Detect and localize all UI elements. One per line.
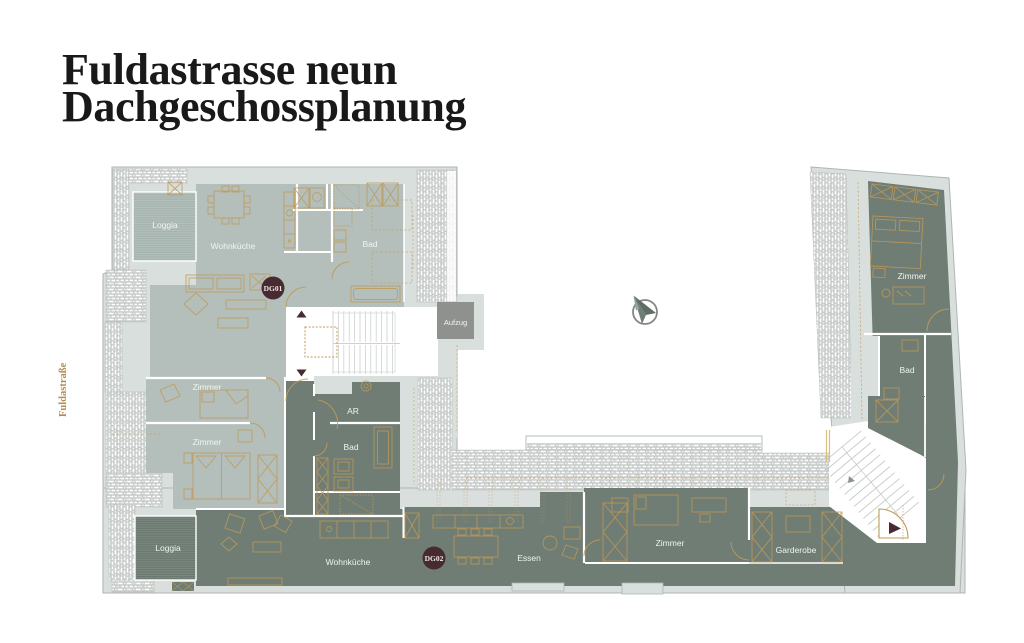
svg-text:Zimmer: Zimmer: [898, 271, 927, 281]
svg-text:Bad: Bad: [343, 442, 358, 452]
svg-text:Loggia: Loggia: [152, 220, 178, 230]
svg-text:Zimmer: Zimmer: [193, 437, 222, 447]
svg-text:Garderobe: Garderobe: [776, 545, 817, 555]
svg-text:Zimmer: Zimmer: [656, 538, 685, 548]
svg-text:DG01: DG01: [264, 284, 283, 293]
svg-text:DG02: DG02: [425, 554, 444, 563]
svg-text:Loggia: Loggia: [155, 543, 181, 553]
svg-text:Essen: Essen: [517, 553, 541, 563]
svg-text:Bad: Bad: [362, 239, 377, 249]
svg-text:Aufzug: Aufzug: [444, 318, 467, 327]
svg-text:Bad: Bad: [899, 365, 914, 375]
svg-text:Wohnküche: Wohnküche: [326, 557, 371, 567]
svg-text:Zimmer: Zimmer: [193, 382, 222, 392]
svg-text:AR: AR: [347, 406, 359, 416]
svg-text:Wohnküche: Wohnküche: [211, 241, 256, 251]
